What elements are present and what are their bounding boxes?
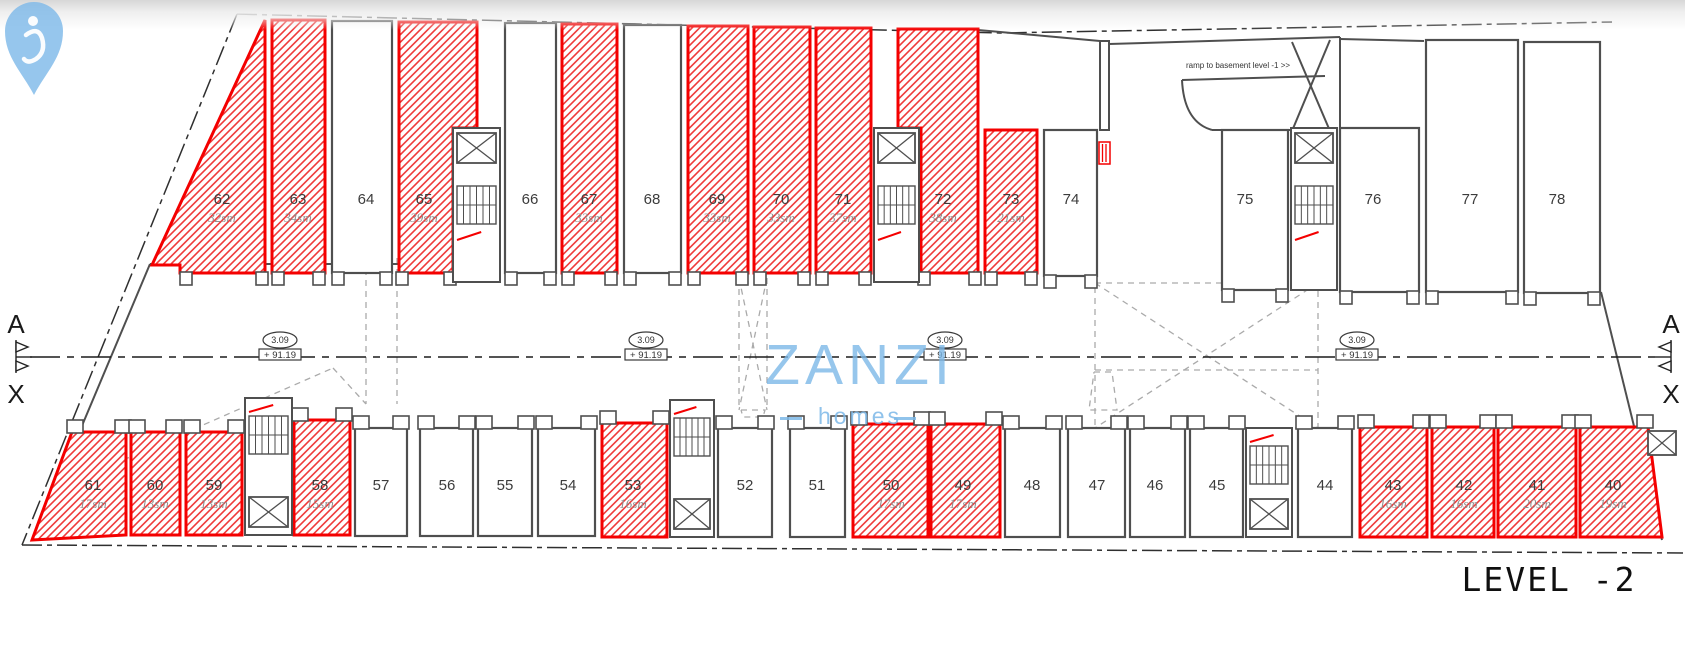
pillar-cap — [1066, 416, 1082, 429]
section-marker: AX — [1655, 309, 1680, 409]
elevation-level: + 91.19 — [1341, 350, 1373, 361]
unit-68-area[interactable] — [624, 25, 681, 273]
unit-64-number: 64 — [358, 191, 375, 208]
unit-50-size: 17sm — [877, 496, 904, 511]
unit-67-number: 67 — [581, 191, 598, 208]
door-pier — [1044, 275, 1056, 288]
unit-73-size: 21sm — [997, 210, 1024, 225]
unit-75-area[interactable] — [1222, 130, 1288, 290]
pillar-cap — [1358, 415, 1374, 428]
door-pier — [736, 272, 748, 285]
door-pier — [1025, 272, 1037, 285]
door-pier — [605, 272, 617, 285]
section-marker-top-label: A — [7, 309, 25, 339]
unit-61-number: 61 — [85, 477, 102, 494]
pillar-cap — [1413, 415, 1429, 428]
unit-49-size: 17sm — [949, 496, 976, 511]
stairwell — [874, 128, 919, 282]
unit-77-area[interactable] — [1426, 40, 1518, 292]
unit-77[interactable]: 77 — [1426, 40, 1518, 304]
logo-dash-left — [780, 417, 802, 420]
page-top-fade — [0, 0, 1685, 30]
pillar-cap — [336, 408, 352, 421]
door-pier — [798, 272, 810, 285]
unit-52-number: 52 — [737, 477, 754, 494]
unit-47[interactable]: 47 — [1066, 416, 1127, 537]
unit-51-number: 51 — [809, 477, 826, 494]
door-pier — [1588, 292, 1600, 305]
pillar-cap — [393, 416, 409, 429]
unit-62[interactable]: 6232sm — [152, 20, 268, 285]
door-pier — [859, 272, 871, 285]
unit-73[interactable]: 7321sm — [985, 130, 1037, 285]
unit-60-size: 13sm — [141, 496, 168, 511]
door-pier — [313, 272, 325, 285]
unit-72-number: 72 — [935, 191, 952, 208]
section-marker-bottom-label: X — [1662, 379, 1679, 409]
pillar-cap — [1046, 416, 1062, 429]
unit-69[interactable]: 6933sm — [688, 26, 748, 285]
unit-43-size: 16sm — [1379, 496, 1406, 511]
pillar-cap — [1171, 416, 1187, 429]
unit-63[interactable]: 6334sm — [272, 20, 325, 285]
elevation-height: 3.09 — [1348, 335, 1366, 345]
unit-62-number: 62 — [214, 191, 231, 208]
unit-44[interactable]: 44 — [1296, 416, 1354, 537]
section-flag-icon — [1659, 361, 1671, 371]
unit-69-size: 33sm — [702, 210, 730, 225]
door-pier — [688, 272, 700, 285]
ramp-note: ramp to basement level -1 >> — [1186, 61, 1346, 70]
unit-43[interactable]: 4316sm — [1358, 415, 1429, 537]
unit-59-size: 13sm — [200, 496, 227, 511]
pillar-cap — [1480, 415, 1496, 428]
door-pier — [624, 272, 636, 285]
unit-44-number: 44 — [1317, 477, 1334, 494]
door-pier — [505, 272, 517, 285]
pillar-cap — [986, 412, 1002, 425]
elevation-marker: 3.09+ 91.19 — [1336, 332, 1378, 361]
unit-40-size: 19sm — [1599, 496, 1626, 511]
unit-76-number: 76 — [1365, 191, 1382, 208]
property-boundary-line — [22, 545, 1683, 553]
unit-42[interactable]: 4216sm — [1430, 415, 1496, 537]
section-marker: AX — [7, 309, 32, 409]
unit-68-number: 68 — [644, 191, 661, 208]
pillar-cap — [1430, 415, 1446, 428]
pillar-cap — [1229, 416, 1245, 429]
unit-71-area[interactable] — [816, 28, 871, 273]
unit-75-number: 75 — [1237, 191, 1254, 208]
pillar-cap — [476, 416, 492, 429]
unit-53[interactable]: 5316sm — [600, 411, 669, 537]
door-pier — [272, 272, 284, 285]
unit-71-number: 71 — [835, 191, 852, 208]
unit-73-number: 73 — [1003, 191, 1020, 208]
pillar-cap — [418, 416, 434, 429]
unit-78[interactable]: 78 — [1524, 42, 1600, 305]
unit-62-area[interactable] — [152, 20, 265, 273]
unit-70-size: 33sm — [766, 210, 794, 225]
door-pier — [1524, 292, 1536, 305]
unit-66-area[interactable] — [505, 23, 556, 273]
unit-69-area[interactable] — [688, 26, 748, 273]
unit-52[interactable]: 52 — [716, 416, 774, 537]
unit-76[interactable]: 76 — [1340, 128, 1419, 304]
door-pier — [380, 272, 392, 285]
unit-60-number: 60 — [147, 477, 164, 494]
door-pier — [1222, 289, 1234, 302]
door-pier — [562, 272, 574, 285]
door-pier — [969, 272, 981, 285]
wall-line — [1340, 39, 1424, 41]
floor-plan-canvas: 6232sm6334sm646539sm666733sm686933sm7033… — [0, 0, 1685, 655]
elevation-height: 3.09 — [637, 335, 655, 345]
door-pier — [256, 272, 268, 285]
unit-45[interactable]: 45 — [1188, 416, 1245, 537]
unit-55[interactable]: 55 — [476, 416, 534, 536]
unit-74-number: 74 — [1063, 191, 1080, 208]
pillar-cap — [228, 420, 244, 433]
section-flag-icon — [1659, 342, 1671, 352]
section-marker-bottom-label: X — [7, 379, 24, 409]
pillar-cap — [1575, 415, 1591, 428]
unit-67-area[interactable] — [562, 24, 617, 273]
unit-64-area[interactable] — [332, 21, 392, 273]
wall-pier — [1100, 41, 1109, 130]
door-pier — [1426, 291, 1438, 304]
elevation-level: + 91.19 — [264, 350, 296, 361]
unit-63-area[interactable] — [272, 20, 325, 273]
unit-47-number: 47 — [1089, 477, 1106, 494]
pillar-cap — [1003, 416, 1019, 429]
ramp-curve-wall — [1182, 80, 1212, 130]
unit-65-size: 39sm — [409, 210, 437, 225]
unit-70-number: 70 — [773, 191, 790, 208]
unit-61[interactable]: 6117sm — [32, 420, 131, 540]
stairwell — [1246, 428, 1292, 537]
unit-71[interactable]: 7137sm — [816, 28, 871, 285]
section-marker-top-label: A — [1662, 309, 1680, 339]
logo-dash-right — [894, 417, 916, 420]
unit-50-number: 50 — [883, 477, 900, 494]
unit-66[interactable]: 66 — [505, 23, 556, 285]
red-door-marker — [1099, 142, 1110, 164]
door-pier — [1407, 291, 1419, 304]
pillar-cap — [292, 408, 308, 421]
unit-49[interactable]: 4917sm — [929, 412, 1002, 537]
unit-71-size: 37sm — [828, 210, 856, 225]
unit-40-number: 40 — [1605, 477, 1622, 494]
wall-line — [1182, 76, 1325, 80]
elevation-marker: 3.09+ 91.19 — [259, 332, 301, 361]
unit-48-number: 48 — [1024, 477, 1041, 494]
unit-43-number: 43 — [1385, 477, 1402, 494]
unit-57[interactable]: 57 — [353, 416, 409, 536]
pillar-cap — [653, 411, 669, 424]
stairwell — [670, 400, 714, 537]
unit-63-size: 34sm — [283, 210, 311, 225]
dashed-guide-line — [1089, 372, 1117, 410]
door-pier — [669, 272, 681, 285]
door-pier — [1340, 291, 1352, 304]
pillar-cap — [1111, 416, 1127, 429]
door-pier — [544, 272, 556, 285]
unit-56[interactable]: 56 — [418, 416, 475, 536]
section-flag-icon — [16, 342, 28, 352]
stairwell — [245, 398, 292, 535]
door-pier — [1085, 275, 1097, 288]
unit-66-number: 66 — [522, 191, 539, 208]
elevation-level: + 91.19 — [630, 350, 662, 361]
unit-46-number: 46 — [1147, 477, 1164, 494]
unit-51[interactable]: 51 — [788, 416, 847, 537]
pillar-cap — [166, 420, 182, 433]
pillar-cap — [67, 420, 83, 433]
section-flag-icon — [16, 361, 28, 371]
unit-59-number: 59 — [206, 477, 223, 494]
unit-72-size: 38sm — [928, 210, 956, 225]
unit-74[interactable]: 74 — [1044, 130, 1097, 288]
door-pier — [754, 272, 766, 285]
pillar-cap — [1296, 416, 1312, 429]
dashed-guide-line — [1095, 283, 1318, 428]
unit-60[interactable]: 6013sm — [129, 420, 182, 535]
unit-64[interactable]: 64 — [332, 21, 392, 285]
unit-41-number: 41 — [1529, 477, 1546, 494]
pillar-cap — [129, 420, 145, 433]
unit-65-number: 65 — [416, 191, 433, 208]
pillar-cap — [581, 416, 597, 429]
unit-67[interactable]: 6733sm — [562, 24, 617, 285]
unit-61-size: 17sm — [79, 496, 106, 511]
pillar-cap — [518, 416, 534, 429]
unit-56-number: 56 — [439, 477, 456, 494]
pillar-cap — [1128, 416, 1144, 429]
pillar-cap — [353, 416, 369, 429]
unit-54-number: 54 — [560, 477, 577, 494]
unit-58-size: 15sm — [306, 496, 333, 511]
pillar-cap — [716, 416, 732, 429]
unit-78-number: 78 — [1549, 191, 1566, 208]
stairwell — [1291, 128, 1337, 290]
unit-41[interactable]: 4120sm — [1496, 415, 1578, 537]
door-pier — [985, 272, 997, 285]
unit-45-number: 45 — [1209, 477, 1226, 494]
level-label: LEVEL -2 — [1436, 560, 1662, 599]
door-pier — [180, 272, 192, 285]
door-pier — [1276, 289, 1288, 302]
right-elevator-icon — [1648, 431, 1676, 455]
door-pier — [816, 272, 828, 285]
unit-42-number: 42 — [1456, 477, 1473, 494]
unit-77-number: 77 — [1462, 191, 1479, 208]
unit-76-area[interactable] — [1340, 128, 1419, 292]
unit-53-number: 53 — [625, 477, 642, 494]
unit-42-size: 16sm — [1450, 496, 1477, 511]
unit-48[interactable]: 48 — [1003, 416, 1062, 537]
pillar-cap — [1188, 416, 1204, 429]
pillar-cap — [536, 416, 552, 429]
unit-55-number: 55 — [497, 477, 514, 494]
logo-pin-icon — [0, 0, 68, 98]
elevation-marker: 3.09+ 91.19 — [625, 332, 667, 361]
logo-brand-text: ZANZI — [752, 334, 968, 396]
pillar-cap — [600, 411, 616, 424]
unit-59[interactable]: 5913sm — [184, 420, 244, 535]
floor-plan-level-minus-2: 6232sm6334sm646539sm666733sm686933sm7033… — [0, 0, 1685, 655]
pillar-cap — [184, 420, 200, 433]
unit-58[interactable]: 5815sm — [292, 408, 352, 535]
unit-50[interactable]: 5017sm — [851, 412, 930, 537]
unit-63-number: 63 — [290, 191, 307, 208]
unit-69-number: 69 — [709, 191, 726, 208]
unit-58-number: 58 — [312, 477, 329, 494]
door-pier — [332, 272, 344, 285]
elevation-height: 3.09 — [271, 335, 289, 345]
pillar-cap — [1338, 416, 1354, 429]
unit-57-number: 57 — [373, 477, 390, 494]
unit-75[interactable]: 75 — [1222, 130, 1288, 302]
unit-41-size: 20sm — [1523, 496, 1550, 511]
unit-70-area[interactable] — [754, 27, 810, 273]
unit-53-size: 16sm — [619, 496, 646, 511]
wall-line — [1109, 37, 1340, 44]
door-pier — [1506, 291, 1518, 304]
unit-54[interactable]: 54 — [536, 416, 597, 536]
unit-68[interactable]: 68 — [624, 25, 681, 285]
pillar-cap — [1496, 415, 1512, 428]
dashed-guide-line — [333, 368, 366, 404]
pillar-cap — [1637, 415, 1653, 428]
unit-78-area[interactable] — [1524, 42, 1600, 293]
door-pier — [396, 272, 408, 285]
unit-67-size: 33sm — [574, 210, 602, 225]
stairwell — [453, 128, 500, 282]
unit-46[interactable]: 46 — [1128, 416, 1187, 537]
unit-49-number: 49 — [955, 477, 972, 494]
unit-70[interactable]: 7033sm — [754, 27, 810, 285]
unit-62-size: 32sm — [207, 210, 235, 225]
pillar-cap — [459, 416, 475, 429]
